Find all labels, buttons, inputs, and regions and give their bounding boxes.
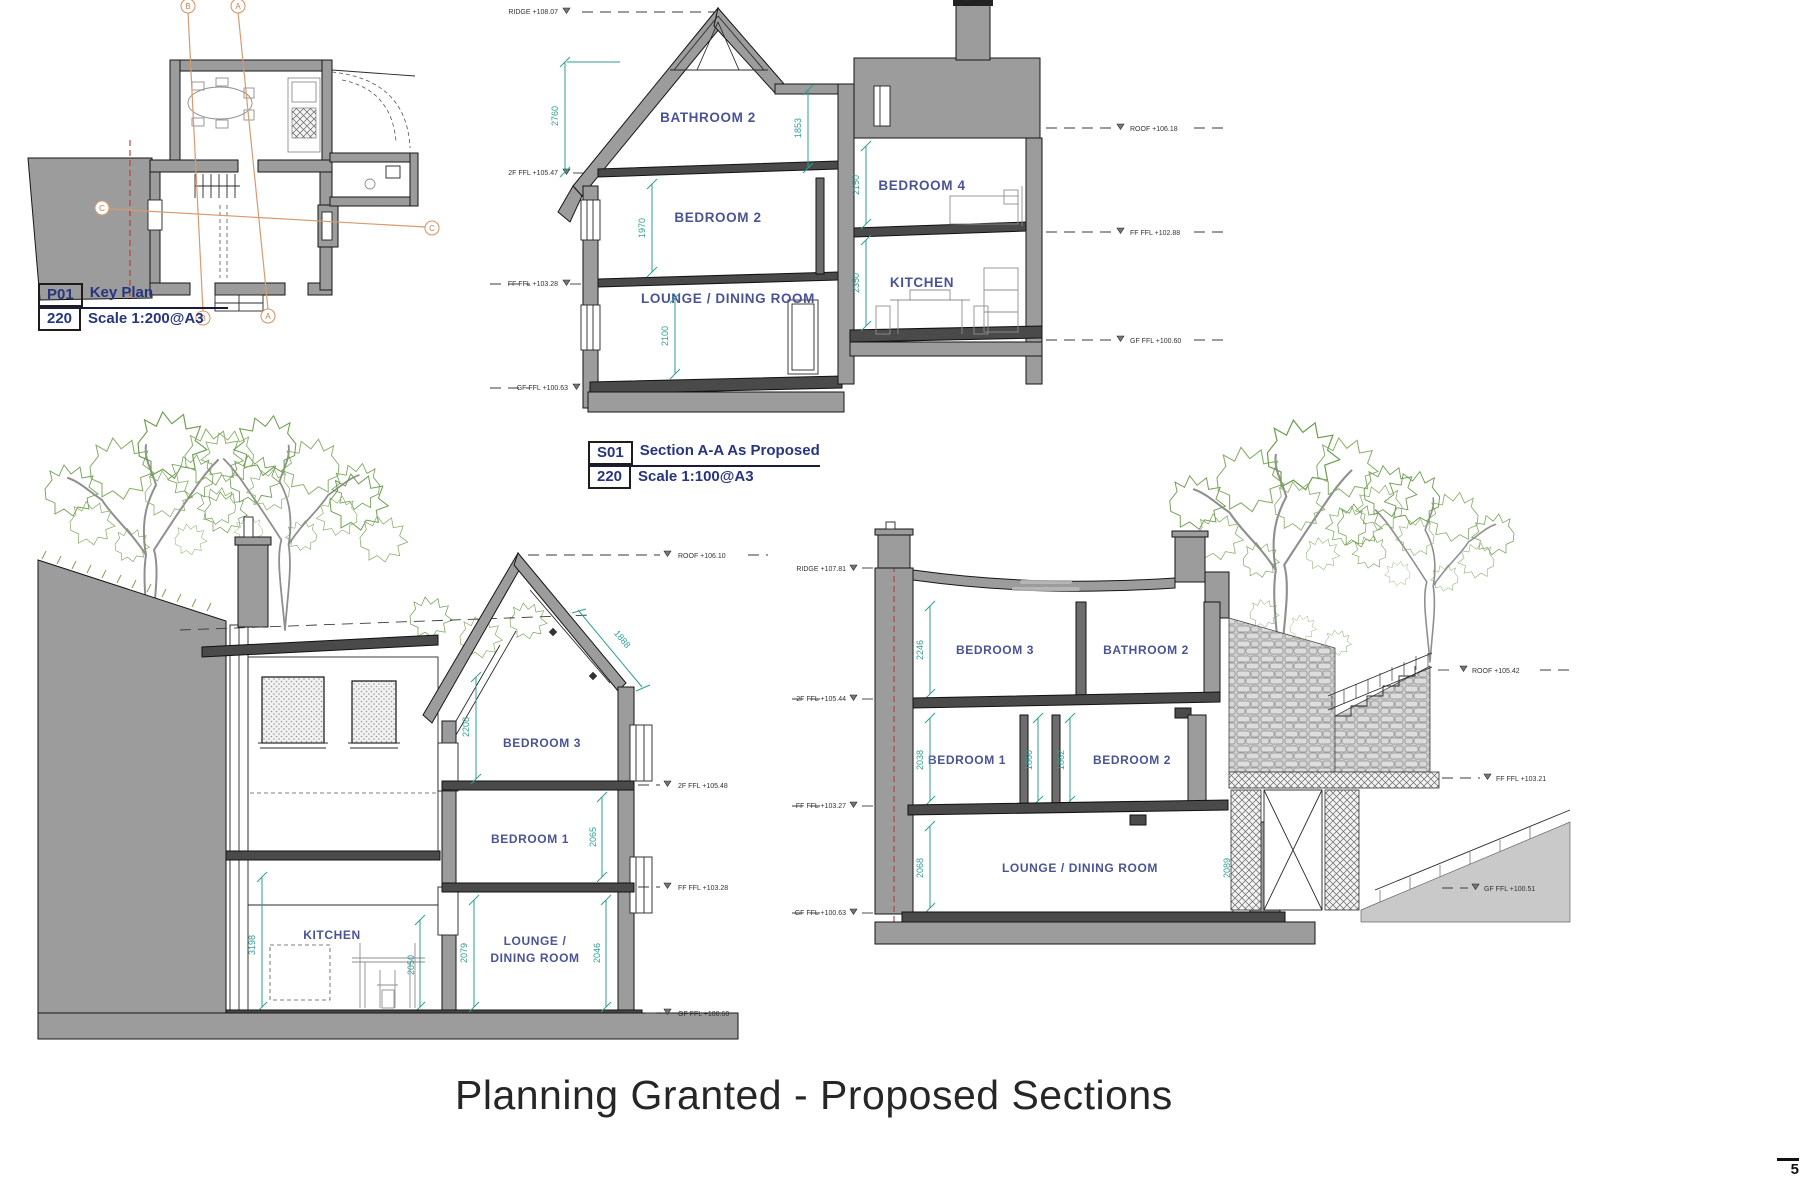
keyplan-bathroom-wing [330, 153, 418, 206]
c-ff-floor [908, 800, 1228, 815]
aa-room-bedroom4: BEDROOM 4 [878, 178, 965, 193]
svg-text:2046: 2046 [592, 943, 602, 963]
aa-bedroom2-partition [816, 178, 824, 274]
c-sloped-ground [1361, 822, 1570, 922]
svg-text:ROOF +106.18: ROOF +106.18 [1130, 126, 1178, 133]
aa-rear-upper-window [874, 86, 890, 126]
svg-text:FF FFL +103.28: FF FFL +103.28 [678, 885, 728, 892]
drawing-sheet: B A B A C C P01 Key Plan 220 Scale 1:200… [0, 0, 1800, 1199]
b-room-lounge-line1: LOUNGE / [504, 934, 567, 948]
svg-text:2068: 2068 [915, 858, 925, 878]
svg-text:2F FFL +105.48: 2F FFL +105.48 [678, 783, 728, 790]
b-kitchen-dashed-zone [270, 945, 330, 1000]
c-stone-wall [1229, 618, 1335, 772]
keyplan-garden-wall [28, 158, 152, 300]
c-room-bedroom2: BEDROOM 2 [1093, 753, 1171, 767]
svg-text:GF FFL +100.63: GF FFL +100.63 [795, 910, 846, 917]
b-room-bedroom1: BEDROOM 1 [491, 832, 569, 846]
aa-dim-bedroom2: 1970 [637, 179, 657, 277]
svg-text:2760: 2760 [550, 106, 560, 126]
keyplan-wall-left [150, 172, 160, 290]
b-dim-kitchen-left: 3198 [247, 872, 267, 1012]
level-aa-2f: 2F FFL +105.47 [508, 169, 583, 177]
keyplan-wall-top [170, 60, 332, 71]
c-lattice-band [1229, 772, 1439, 788]
b-dim-lounge-right: 2046 [592, 895, 611, 1012]
section-marker-a: A [235, 2, 241, 11]
level-c-gf: GF FFL +100.63 [792, 909, 874, 917]
level-b-2f: 2F FFL +105.48 [638, 781, 728, 790]
svg-text:2050: 2050 [406, 955, 416, 975]
c-dim-lounge-left: 2068 [915, 821, 935, 913]
keyplan-garage-arc [332, 72, 410, 148]
c-right-wall-mid [1188, 715, 1206, 805]
svg-text:2150: 2150 [851, 175, 861, 195]
c-gf-floor [902, 912, 1285, 922]
section-c-drawing: RIDGE +107.81 2F FFL +105.44 FF FFL +103… [780, 520, 1580, 1040]
c-partition-bed3-bath2 [1076, 602, 1086, 698]
svg-text:1970: 1970 [637, 218, 647, 238]
c-chimney-right [1172, 531, 1208, 582]
c-braced-door [1264, 790, 1322, 910]
b-dim-kitchen-right: 2050 [406, 915, 425, 1012]
keyplan-kitchen-table [188, 78, 254, 128]
svg-text:2F FFL +105.47: 2F FFL +105.47 [508, 170, 558, 177]
c-gate-panel-1 [1231, 790, 1261, 910]
svg-text:RIDGE +108.07: RIDGE +108.07 [508, 9, 558, 16]
svg-text:2038: 2038 [915, 750, 925, 770]
svg-text:FF FFL +102.88: FF FFL +102.88 [1130, 230, 1180, 237]
b-truss-lines [456, 590, 610, 735]
section-marker-c: C [99, 204, 105, 213]
aa-room-bathroom2: BATHROOM 2 [660, 110, 756, 125]
c-right-wall-upper [1204, 602, 1220, 698]
keyplan-name: Key Plan [90, 283, 153, 307]
keyplan-stairs [195, 174, 240, 198]
page-corner-mark: 5 [1777, 1158, 1799, 1179]
level-aa-ridge: RIDGE +108.07 [508, 8, 715, 16]
outbuilding-window-1 [258, 677, 328, 748]
aa-foundation [588, 392, 844, 412]
hillside [38, 560, 226, 1013]
level-aa-roof-right: ROOF +106.18 [1046, 124, 1226, 133]
b-left-window-2 [438, 887, 458, 935]
svg-text:ROOF +105.42: ROOF +105.42 [1472, 668, 1520, 675]
b-roof-right-slope [514, 553, 626, 691]
level-c-ff-right: FF FFL +103.21 [1442, 774, 1546, 783]
outbuilding-window-2 [348, 681, 400, 748]
aa-dim-bathroom2: 1853 [793, 85, 813, 173]
b-dim-bedroom3: 2208 [461, 672, 481, 784]
c-2f-floor [913, 692, 1220, 708]
svg-text:2100: 2100 [660, 326, 670, 346]
section-b-drawing: KITCHEN 3198 2050 BEDROOM 3 BEDROOM 1 LO… [30, 425, 770, 1040]
aa-ff-floor [598, 272, 838, 287]
level-aa-ff: FF FFL +103.28 [490, 280, 583, 288]
svg-text:2089: 2089 [1222, 858, 1232, 878]
aa-rear-foundation [850, 342, 1042, 356]
aa-left-window-1 [581, 200, 600, 240]
c-room-lounge: LOUNGE / DINING ROOM [1002, 861, 1158, 875]
page-title: Planning Granted - Proposed Sections [455, 1072, 1173, 1119]
svg-text:GF FFL +100.60: GF FFL +100.60 [678, 1011, 729, 1018]
svg-text:GF FFL +100.60: GF FFL +100.60 [1130, 338, 1181, 345]
level-aa-gf-right: GF FFL +100.60 [1046, 336, 1226, 345]
keyplan-kitchen-counter [288, 78, 320, 152]
c-room-bathroom2: BATHROOM 2 [1103, 643, 1189, 657]
level-b-roof: ROOF +106.10 [528, 551, 768, 560]
svg-text:1853: 1853 [793, 118, 803, 138]
svg-text:FF FFL +103.27: FF FFL +103.27 [796, 803, 846, 810]
svg-text:2350: 2350 [851, 273, 861, 293]
aa-lounge-door [788, 300, 818, 374]
aa-room-kitchen: KITCHEN [890, 275, 954, 290]
aa-gf-floor [590, 376, 842, 394]
section-marker-c2: C [429, 224, 435, 233]
keyplan-sheet: 220 [38, 309, 81, 331]
aa-room-lounge: LOUNGE / DINING ROOM [641, 291, 815, 306]
b-ground [38, 1013, 738, 1039]
svg-text:1888: 1888 [612, 628, 633, 650]
svg-text:GF FFL +100.51: GF FFL +100.51 [1484, 886, 1535, 893]
b-room-lounge-line2: DINING ROOM [490, 951, 579, 965]
aa-left-window-2 [581, 305, 600, 350]
b-room-bedroom3: BEDROOM 3 [503, 736, 581, 750]
svg-text:1862: 1862 [1056, 750, 1066, 770]
c-notch-lounge [1130, 815, 1146, 825]
b-2f-floor [442, 781, 634, 790]
svg-text:2246: 2246 [915, 640, 925, 660]
aa-chimney [953, 0, 993, 60]
svg-text:2065: 2065 [588, 827, 598, 847]
aa-2f-floor [598, 161, 838, 177]
svg-text:ROOF +106.10: ROOF +106.10 [678, 553, 726, 560]
svg-text:FF FFL +103.21: FF FFL +103.21 [1496, 776, 1546, 783]
level-aa-ff-right: FF FFL +102.88 [1046, 228, 1226, 237]
svg-text:2208: 2208 [461, 717, 471, 737]
level-c-roof-right: ROOF +105.42 [1438, 666, 1572, 675]
svg-text:2079: 2079 [459, 943, 469, 963]
keyplan-wall-mid [150, 160, 238, 172]
level-c-ff: FF FFL +103.27 [792, 802, 874, 810]
section-marker-b: B [185, 2, 190, 11]
c-stone-wall-steps-base [1335, 666, 1430, 772]
level-c-2f: 2F FFL +105.44 [792, 695, 874, 703]
c-chimney-left [875, 522, 913, 568]
c-room-bedroom1: BEDROOM 1 [928, 753, 1006, 767]
b-dim-lounge-left: 2079 [459, 895, 479, 1012]
kitchen-ceiling-band [226, 851, 440, 860]
b-room-kitchen: KITCHEN [303, 928, 361, 942]
outbuilding-chimney [235, 517, 271, 627]
b-right-window-1 [630, 725, 652, 781]
svg-text:3198: 3198 [247, 935, 257, 955]
svg-text:FF FFL +103.28: FF FFL +103.28 [508, 281, 558, 288]
b-ff-floor [442, 883, 634, 892]
svg-text:GF FFL +100.63: GF FFL +100.63 [517, 385, 568, 392]
aa-roof-eave-kick [558, 186, 582, 222]
svg-text:1860: 1860 [1024, 750, 1034, 770]
keyplan-ref: P01 [38, 283, 83, 307]
svg-text:2F FFL +105.44: 2F FFL +105.44 [796, 696, 846, 703]
c-ground [875, 922, 1315, 944]
keyplan-scale: Scale 1:200@A3 [88, 309, 204, 331]
aa-room-bedroom2: BEDROOM 2 [674, 210, 761, 225]
keyplan-titleblock: P01 Key Plan 220 Scale 1:200@A3 [38, 283, 228, 331]
c-dim-bedroom3: 2246 [915, 601, 935, 699]
level-aa-gf: GF FFL +100.63 [490, 384, 580, 392]
c-gate-panel-2 [1325, 790, 1359, 910]
svg-text:RIDGE +107.81: RIDGE +107.81 [796, 566, 846, 573]
c-room-bedroom3: BEDROOM 3 [956, 643, 1034, 657]
level-c-ridge: RIDGE +107.81 [796, 565, 874, 573]
aa-roof-right-slope [714, 8, 785, 93]
b-dim-bedroom1: 2065 [588, 792, 607, 882]
section-marker-a2: A [265, 312, 271, 321]
